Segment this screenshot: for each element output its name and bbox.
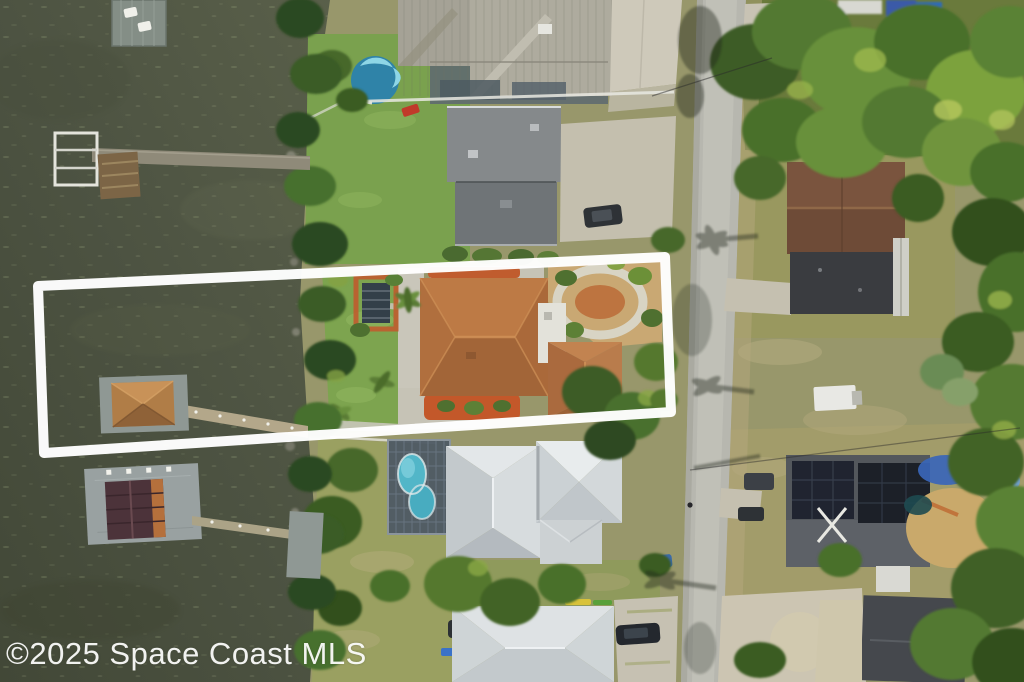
boat-lift-post bbox=[126, 469, 131, 474]
pergola bbox=[350, 274, 403, 337]
driveway-ne-house bbox=[724, 278, 792, 315]
utility-trailer bbox=[813, 385, 862, 411]
pedestrian bbox=[687, 502, 692, 507]
north-metal-roof-house bbox=[398, 0, 612, 104]
aerial-photo-canvas bbox=[0, 0, 1024, 682]
parked-suv bbox=[744, 473, 774, 490]
ne-house-brown-gable bbox=[787, 162, 909, 316]
parked-car bbox=[738, 507, 764, 521]
boat-lift-post bbox=[146, 468, 151, 473]
north-driveway bbox=[608, 0, 682, 112]
green-kayak bbox=[593, 600, 612, 605]
boat-lift-post bbox=[106, 470, 111, 475]
screened-pool-enclosure bbox=[388, 440, 450, 534]
aerial-photo: ©2025 Space Coast MLS bbox=[0, 0, 1024, 682]
mls-watermark: ©2025 Space Coast MLS bbox=[6, 636, 367, 672]
sun-deck-platform bbox=[112, 0, 166, 46]
subject-dock-roof bbox=[111, 381, 174, 427]
boat-lift-post bbox=[166, 466, 171, 471]
south-white-roof-house bbox=[446, 441, 622, 564]
